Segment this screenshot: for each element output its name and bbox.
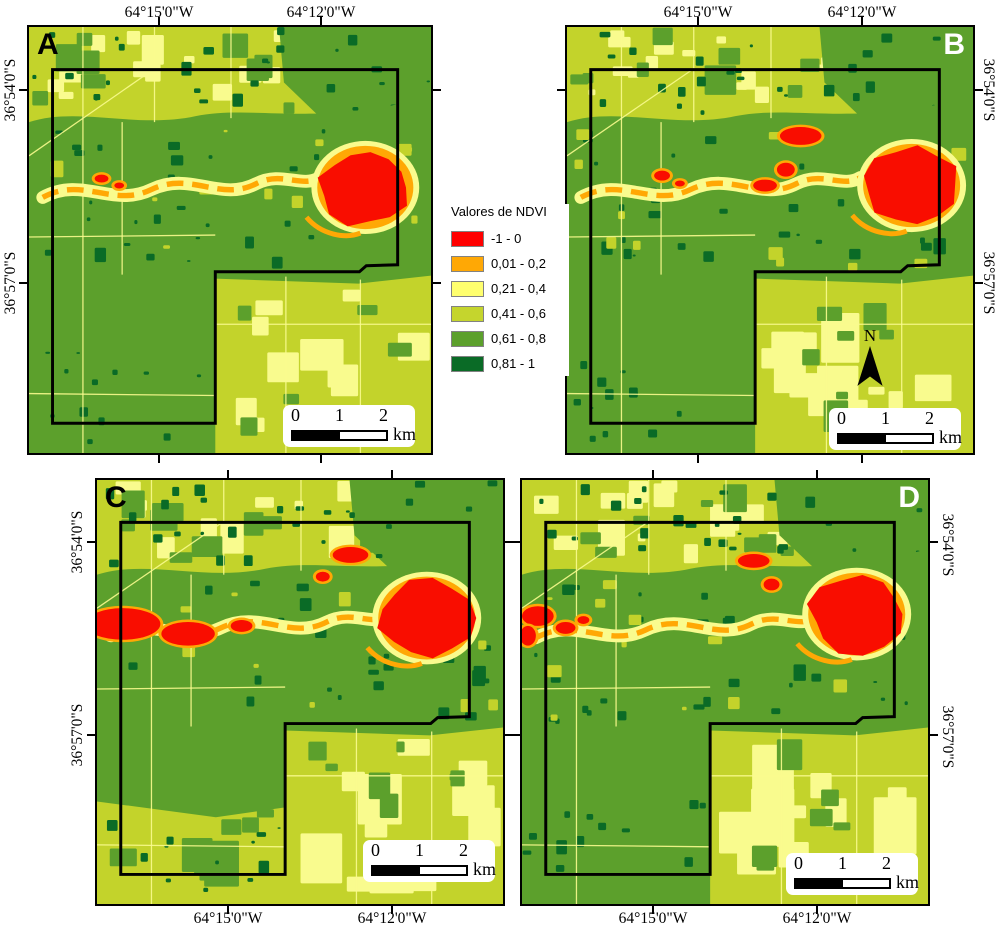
map-shape	[327, 687, 332, 691]
map-shape	[933, 37, 941, 41]
map-shape	[611, 501, 621, 511]
map-shape	[221, 819, 241, 835]
map-shape	[684, 544, 698, 563]
scalebar-unit: km	[393, 424, 416, 445]
map-shape	[177, 206, 186, 210]
map-shape	[283, 102, 294, 113]
map-shape	[79, 407, 88, 416]
map-shape	[244, 555, 253, 566]
axis-tick	[433, 89, 441, 91]
map-panel-d: D 0 1 2 km	[520, 478, 930, 906]
scalebar-filled-segment	[839, 435, 886, 442]
map-shape	[703, 697, 711, 707]
map-shape	[576, 129, 589, 140]
map-shape	[379, 82, 385, 85]
map-shape	[72, 145, 81, 150]
map-shape	[853, 93, 860, 101]
map-shape	[164, 433, 171, 440]
map-shape	[810, 809, 833, 826]
map-shape	[146, 254, 154, 261]
scalebar-unit: km	[939, 427, 962, 448]
map-shape	[719, 812, 753, 854]
map-shape	[600, 99, 606, 107]
scalebar-tick-0: 0	[837, 408, 846, 429]
scalebar-tick-1: 1	[838, 853, 847, 874]
map-shape	[597, 377, 606, 386]
map-shape	[689, 800, 698, 809]
map-shape	[384, 654, 389, 659]
map-shape	[608, 54, 616, 58]
map-shape	[272, 257, 283, 269]
map-shape	[816, 240, 822, 244]
map-shape	[726, 71, 734, 75]
map-shape	[325, 764, 337, 771]
longitude-label: 64°12'0"W	[287, 4, 356, 22]
map-shape	[678, 243, 686, 250]
map-shape	[199, 99, 208, 103]
scalebar-empty-segment	[843, 880, 890, 887]
map-shape	[547, 597, 553, 600]
legend-class-label: 0,21 - 0,4	[491, 281, 546, 296]
map-shape	[59, 92, 74, 99]
map-shape	[556, 622, 576, 634]
legend-class-label: 0,61 - 0,8	[491, 331, 546, 346]
map-shape	[201, 498, 207, 503]
map-shape	[920, 237, 925, 243]
axis-tick	[697, 455, 699, 463]
map-shape	[624, 249, 632, 259]
map-shape	[267, 352, 299, 382]
map-shape	[170, 552, 193, 563]
map-shape	[352, 107, 358, 111]
map-shape	[277, 27, 284, 35]
map-shape	[534, 653, 537, 657]
map-shape	[427, 81, 430, 83]
map-shape	[753, 180, 777, 192]
legend-row: 0,01 - 0,2	[451, 251, 569, 276]
map-shape	[203, 888, 208, 892]
north-arrow-glyph	[854, 346, 886, 388]
map-shape	[719, 209, 727, 214]
map-shape	[231, 592, 237, 596]
map-shape	[771, 708, 780, 714]
map-shape	[703, 251, 714, 262]
map-shape	[697, 77, 706, 87]
map-shape	[777, 87, 783, 92]
map-shape	[789, 204, 799, 212]
map-shape	[365, 824, 388, 837]
map-shape	[737, 77, 745, 81]
map-shape	[729, 679, 740, 687]
map-shape	[738, 554, 770, 568]
map-shape	[701, 500, 713, 507]
axis-tick	[930, 734, 938, 736]
map-shape	[874, 797, 917, 854]
map-shape	[767, 493, 776, 501]
map-shape	[297, 584, 309, 592]
map-shape	[587, 814, 594, 820]
map-shape	[700, 803, 706, 809]
map-shape	[172, 487, 179, 496]
latitude-label: 36°54'0"S	[2, 59, 20, 122]
map-shape	[114, 183, 124, 189]
scalebar-bar	[371, 865, 468, 876]
map-shape	[833, 822, 850, 830]
map-shape	[779, 231, 791, 237]
map-shape	[213, 84, 232, 101]
scalebar-unit: km	[473, 859, 496, 880]
legend-row: 0,81 - 1	[451, 351, 569, 376]
axis-tick	[861, 455, 863, 463]
map-shape	[411, 216, 417, 224]
map-shape	[610, 30, 624, 46]
map-shape	[76, 352, 80, 354]
map-shape	[751, 789, 794, 847]
map-shape	[346, 510, 350, 512]
ndvi-raster-b	[567, 27, 973, 453]
map-shape	[285, 221, 291, 227]
map-shape	[529, 833, 537, 840]
map-shape	[95, 99, 98, 101]
map-shape	[736, 82, 747, 90]
map-shape	[539, 499, 543, 504]
map-shape	[654, 171, 670, 181]
map-shape	[194, 484, 205, 495]
map-shape	[89, 201, 92, 205]
scalebar-tick-0: 0	[371, 840, 380, 861]
map-shape	[708, 636, 722, 644]
map-shape	[595, 599, 605, 608]
legend-class-label: 0,41 - 0,6	[491, 306, 546, 321]
map-shape	[405, 147, 412, 152]
map-shape	[338, 695, 342, 700]
map-shape	[805, 497, 815, 508]
map-shape	[594, 162, 598, 166]
map-shape	[789, 683, 793, 688]
map-shape	[388, 343, 412, 357]
map-shape	[799, 164, 804, 170]
map-shape	[522, 606, 554, 626]
map-shape	[315, 139, 323, 146]
map-shape	[232, 94, 243, 107]
map-shape	[238, 306, 252, 321]
map-shape	[600, 698, 607, 703]
scale-bar-c: 0 1 2 km	[363, 840, 495, 882]
map-shape	[836, 392, 848, 400]
map-shape	[728, 697, 740, 709]
map-shape	[704, 538, 711, 546]
map-shape	[380, 794, 399, 818]
map-shape	[534, 496, 559, 514]
map-shape	[153, 534, 162, 542]
map-shape	[203, 47, 214, 55]
map-shape	[719, 48, 741, 65]
map-shape	[551, 714, 558, 720]
map-shape	[640, 528, 649, 538]
legend-row: 0,41 - 0,6	[451, 301, 569, 326]
axis-tick	[320, 455, 322, 463]
map-shape	[613, 66, 633, 76]
map-shape	[231, 620, 253, 632]
map-shape	[95, 175, 109, 183]
map-shape	[523, 851, 532, 855]
map-shape	[915, 375, 952, 402]
map-shape	[29, 344, 215, 453]
map-shape	[296, 506, 304, 511]
map-shape	[209, 155, 213, 159]
map-shape	[112, 370, 117, 375]
map-shape	[196, 237, 200, 239]
map-shape	[638, 592, 641, 596]
longitude-label: 64°15'0"W	[125, 4, 194, 22]
legend-swatch	[451, 256, 484, 272]
map-shape	[327, 84, 336, 92]
map-shape	[653, 28, 673, 46]
map-shape	[339, 592, 351, 606]
map-shape	[321, 540, 325, 544]
map-shape	[250, 581, 260, 586]
map-shape	[396, 742, 404, 753]
axis-tick	[87, 541, 95, 543]
map-shape	[564, 811, 570, 818]
legend-class-label: 0,01 - 0,2	[491, 256, 546, 271]
map-shape	[716, 36, 726, 43]
map-shape	[206, 223, 210, 227]
map-shape	[488, 480, 498, 486]
latitude-label: 36°57'0"S	[938, 706, 956, 769]
map-shape	[848, 263, 857, 271]
legend-title: Valores de NDVI	[451, 204, 569, 219]
map-shape	[255, 676, 262, 685]
map-shape	[719, 490, 728, 494]
map-shape	[192, 536, 223, 557]
map-shape	[577, 616, 589, 624]
map-shape	[194, 88, 201, 93]
map-shape	[833, 679, 847, 692]
map-shape	[150, 510, 177, 531]
map-shape	[629, 615, 642, 625]
map-shape	[87, 439, 92, 444]
scalebar-filled-segment	[796, 880, 843, 887]
legend-row: 0,61 - 0,8	[451, 326, 569, 351]
map-shape	[633, 254, 636, 256]
scalebar-tick-1: 1	[881, 408, 890, 429]
map-shape	[187, 260, 191, 262]
map-shape	[127, 31, 140, 45]
map-shape	[182, 838, 213, 872]
map-shape	[629, 48, 636, 55]
scalebar-tick-0: 0	[291, 405, 300, 426]
map-shape	[600, 32, 611, 38]
map-shape	[45, 250, 52, 256]
map-shape	[684, 857, 692, 867]
map-shape	[618, 711, 627, 720]
map-shape	[522, 796, 710, 904]
map-shape	[242, 817, 259, 832]
longitude-label: 64°15'0"W	[664, 4, 733, 22]
map-shape	[633, 241, 641, 250]
legend-swatch	[451, 231, 484, 247]
map-shape	[348, 35, 357, 46]
map-shape	[603, 431, 609, 437]
map-shape	[222, 33, 248, 57]
map-shape	[606, 237, 616, 249]
legend-swatch	[451, 306, 484, 322]
map-shape	[373, 681, 383, 690]
longitude-label: 64°15'0"W	[619, 910, 688, 928]
ndvi-raster-a	[29, 27, 431, 453]
map-shape	[590, 436, 596, 442]
north-label: N	[850, 327, 890, 344]
scalebar-bar	[794, 878, 891, 889]
map-shape	[128, 662, 137, 669]
axis-tick	[652, 470, 654, 478]
scalebar-tick-1: 1	[335, 405, 344, 426]
map-shape	[881, 34, 892, 43]
map-shape	[110, 848, 137, 866]
map-shape	[849, 249, 860, 259]
map-shape	[701, 110, 705, 115]
map-shape	[65, 73, 74, 79]
map-shape	[163, 245, 170, 248]
map-shape	[671, 154, 675, 158]
map-shape	[257, 832, 266, 837]
legend-row: 0,21 - 0,4	[451, 276, 569, 301]
map-shape	[247, 878, 253, 882]
latitude-label: 36°54'0"S	[938, 514, 956, 577]
map-shape	[181, 606, 192, 612]
map-shape	[580, 361, 587, 369]
map-shape	[171, 155, 183, 165]
map-shape	[255, 497, 274, 508]
map-shape	[677, 103, 682, 108]
map-shape	[87, 217, 91, 221]
map-shape	[866, 81, 875, 92]
map-shape	[838, 199, 844, 206]
map-shape	[852, 548, 856, 552]
scale-bar-d: 0 1 2 km	[786, 853, 918, 895]
map-shape	[343, 290, 361, 302]
map-shape	[750, 44, 753, 47]
map-shape	[755, 87, 769, 103]
map-shape	[788, 85, 803, 98]
map-shape	[562, 585, 575, 596]
axis-tick	[512, 541, 520, 543]
map-shape	[678, 87, 686, 97]
map-shape	[109, 560, 119, 568]
map-shape	[794, 664, 806, 680]
map-shape	[247, 697, 255, 707]
map-shape	[603, 580, 617, 589]
latitude-label: 36°54'0"S	[69, 511, 87, 574]
axis-tick	[433, 282, 441, 284]
map-shape	[205, 586, 213, 595]
axis-tick	[391, 470, 393, 478]
axis-tick	[816, 470, 818, 478]
map-shape	[406, 499, 413, 506]
ndvi-legend: Valores de NDVI -1 - 00,01 - 0,20,21 - 0…	[451, 204, 569, 376]
map-shape	[574, 399, 581, 405]
map-shape	[245, 236, 254, 248]
map-shape	[161, 622, 214, 646]
panel-letter-d: D	[898, 483, 920, 513]
panel-letter-b: B	[943, 30, 965, 60]
map-shape	[259, 861, 270, 874]
map-shape	[262, 58, 268, 63]
axis-tick	[19, 89, 27, 91]
map-shape	[863, 50, 873, 57]
map-shape	[277, 827, 280, 829]
scalebar-tick-2: 2	[459, 840, 468, 861]
map-shape	[556, 865, 564, 872]
map-shape	[224, 130, 228, 132]
map-shape	[450, 774, 463, 781]
map-shape	[129, 512, 136, 521]
map-shape	[253, 664, 258, 668]
latitude-label: 36°57'0"S	[2, 252, 20, 315]
map-shape	[252, 317, 269, 336]
map-shape	[634, 498, 641, 504]
map-shape	[316, 572, 330, 582]
map-shape	[32, 91, 48, 106]
map-shape	[478, 640, 486, 649]
map-shape	[905, 701, 908, 705]
map-shape	[642, 486, 647, 492]
map-shape	[682, 707, 687, 711]
map-shape	[161, 500, 169, 510]
map-shape	[228, 527, 237, 538]
map-shape	[81, 74, 106, 88]
axis-tick	[158, 455, 160, 463]
map-shape	[152, 197, 157, 201]
map-shape	[386, 524, 392, 529]
map-shape	[64, 369, 68, 373]
map-shape	[821, 790, 839, 807]
legend-row: -1 - 0	[451, 226, 569, 251]
map-shape	[777, 163, 795, 177]
axis-tick	[19, 282, 27, 284]
map-shape	[106, 80, 110, 85]
map-shape	[738, 533, 742, 535]
map-shape	[574, 160, 582, 169]
map-shape	[32, 75, 36, 79]
map-shape	[376, 554, 383, 558]
scalebar-tick-2: 2	[379, 405, 388, 426]
map-shape	[322, 129, 326, 133]
longitude-label: 64°12'0"W	[358, 910, 427, 928]
map-shape	[868, 387, 884, 395]
scalebar-tick-2: 2	[925, 408, 934, 429]
map-shape	[168, 142, 180, 150]
map-shape	[314, 154, 319, 160]
map-shape	[598, 823, 606, 830]
map-shape	[777, 546, 783, 554]
map-shape	[723, 484, 747, 512]
map-shape	[264, 189, 272, 200]
map-shape	[622, 828, 630, 832]
legend-swatch	[451, 281, 484, 297]
latitude-label: 36°57'0"S	[69, 704, 87, 767]
map-shape	[729, 547, 736, 551]
map-shape	[300, 598, 312, 611]
scalebar-empty-segment	[420, 867, 467, 874]
longitude-label: 64°12'0"W	[783, 910, 852, 928]
map-shape	[488, 699, 498, 710]
axis-tick	[557, 89, 565, 91]
map-shape	[115, 37, 119, 41]
map-shape	[817, 307, 842, 321]
map-shape	[701, 593, 708, 600]
